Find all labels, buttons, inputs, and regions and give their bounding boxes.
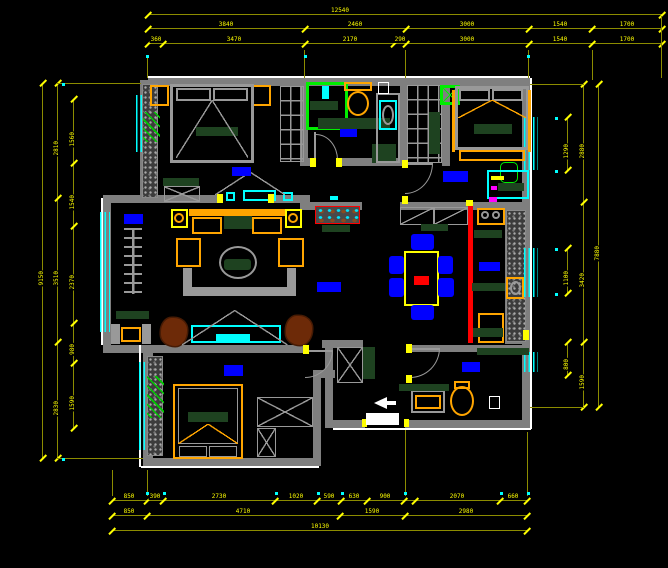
witness-dot-13: [555, 248, 558, 251]
jamb-bed1-right: [268, 194, 274, 203]
decor-cabinet: [315, 206, 360, 224]
top-major-text-3: 1540: [552, 22, 568, 28]
label-bath2: [462, 362, 480, 372]
top-detail-text-1: 3470: [226, 37, 242, 43]
top-detail-text-6: 1700: [619, 37, 635, 43]
extension-line-5: [661, 16, 662, 78]
left-major-text-2: 2830: [54, 400, 60, 416]
hatch-kitchen: [506, 210, 526, 342]
stove-burner-left: [481, 211, 489, 219]
bottom-detail-text-3: 1020: [288, 494, 304, 500]
chair-dining-left-1: [389, 256, 404, 274]
bottom-detail-text-1: 390: [149, 494, 162, 500]
tiny-fixture-magenta: [489, 197, 497, 202]
bed3-drape: [178, 424, 238, 444]
balcony-shelf: [116, 311, 149, 319]
living-feature-lines: [182, 310, 288, 345]
wardrobe-bed1: [280, 86, 304, 162]
wardrobe-bed3-a: [257, 397, 313, 427]
shoe-cabinet-side: [363, 347, 375, 379]
door-bath1-leaf: [314, 132, 316, 160]
right-major-text-2: 1590: [580, 374, 586, 390]
dining-table-center: [414, 276, 429, 285]
toilet2-bowl: [450, 386, 474, 416]
bottom-overall-text-0: 10130: [310, 524, 330, 530]
vanity-bath2-inner: [415, 395, 441, 409]
toilet1-tank: [344, 82, 372, 91]
left-detail-line-0: [73, 99, 74, 428]
window-right-mid: [524, 248, 538, 297]
entry-arrow-tail: [387, 401, 396, 405]
wardrobe-bed3-b: [257, 428, 276, 457]
extension-line-13: [527, 432, 528, 496]
fixture-bath1: [378, 82, 389, 94]
jamb-bath2-top: [406, 344, 412, 353]
bed3-pillow-left: [179, 446, 207, 457]
bottom-major-text-0: 850: [123, 509, 136, 515]
left-major-text-1: 3510: [54, 270, 60, 286]
bottom-detail-text-8: 660: [507, 494, 520, 500]
extension-line-9: [530, 407, 584, 408]
right-detail-text-1: 1100: [564, 270, 570, 286]
kitchen-slider-red: [468, 205, 473, 343]
jamb-hall-bottom: [402, 196, 408, 204]
witness-dot-6: [317, 492, 320, 495]
right-detail-text-0: 1290: [564, 143, 570, 159]
label-kitchen: [479, 262, 500, 271]
witness-dot-5: [275, 492, 278, 495]
nightstand-right: [252, 85, 271, 106]
label-bed3: [224, 365, 243, 376]
outline-bottom-left: [141, 466, 319, 468]
washbasin-bowl: [382, 105, 394, 125]
decor-cabinet-base: [322, 225, 350, 232]
top-detail-text-4: 3000: [459, 37, 475, 43]
shower-head: [322, 86, 329, 99]
sofa-seat-left: [192, 217, 222, 234]
jamb-bed2: [303, 345, 309, 354]
right-detail-text-2: 800: [564, 358, 570, 371]
window-bed2-left: [139, 362, 147, 450]
jamb-kitchen-window: [523, 330, 529, 340]
sofa-gray-bottom: [183, 287, 296, 296]
witness-dot-15: [62, 83, 65, 86]
witness-dot-1: [304, 55, 307, 58]
bottom-detail-text-4: 590: [323, 494, 336, 500]
top-detail-text-3: 290: [394, 37, 407, 43]
bottom-major-text-1: 4710: [235, 509, 251, 515]
bath2-counter-top: [477, 348, 529, 355]
jamb-bath2-bottom: [406, 375, 412, 383]
bed3-blanket: [188, 412, 228, 422]
sofa-cushion: [224, 216, 252, 229]
witness-dot-3: [146, 492, 149, 495]
toilet1-bowl: [347, 91, 369, 116]
label-bath1: [340, 129, 357, 137]
extension-line-0: [147, 55, 148, 78]
witness-dot-0: [146, 55, 149, 58]
top-overall-text-0: 12540: [330, 8, 350, 14]
left-detail-text-3: 980: [70, 343, 76, 356]
door-entry-arc: [410, 348, 440, 378]
witness-dot-12: [555, 170, 558, 173]
witness-dot-10: [527, 492, 530, 495]
side-lamp-right: [288, 213, 298, 223]
balcony-stool-left: [111, 324, 120, 344]
sofa-seat-right: [252, 217, 282, 234]
top-major-text-0: 3840: [218, 22, 234, 28]
toilet2-tank: [454, 381, 470, 389]
bedTR-drape: [458, 100, 526, 118]
left-detail-text-0: 1560: [70, 131, 76, 147]
door-hall-arc: [405, 163, 433, 194]
chair-dining-top: [411, 234, 434, 250]
label-bed1: [232, 167, 251, 176]
chair-dining-right-1: [438, 256, 453, 274]
desk-item-pen: [491, 176, 504, 180]
left-detail-text-1: 1540: [70, 194, 76, 210]
right-major-text-1: 3420: [580, 272, 586, 288]
bottom-detail-text-0: 850: [123, 494, 136, 500]
outline-top: [148, 76, 530, 78]
bottom-major-line-0: [112, 515, 527, 516]
bed1-drape: [176, 100, 248, 158]
top-major-text-1: 2460: [347, 22, 363, 28]
bedTR-blanket: [474, 124, 512, 134]
kitchen-counter-b: [434, 207, 468, 225]
top-overall-line-0: [148, 14, 662, 15]
bottom-detail-text-6: 900: [379, 494, 392, 500]
top-detail-text-2: 2170: [342, 37, 358, 43]
sofa-back: [189, 209, 285, 216]
window-living-left: [100, 212, 110, 332]
witness-dot-14: [555, 293, 558, 296]
left-overall-text-0: 9150: [39, 270, 45, 286]
label-balcony: [124, 214, 143, 224]
coffee-plant: [224, 259, 251, 270]
kitchen-counter-1: [474, 230, 502, 238]
extension-line-12: [405, 430, 406, 496]
sink-bowl: [510, 281, 521, 295]
top-major-text-4: 1700: [619, 22, 635, 28]
chair-dining-left-2: [389, 278, 404, 297]
balcony-stool-right: [142, 324, 151, 344]
kitchen-counter-3: [473, 328, 503, 337]
flower-rack: [124, 228, 142, 294]
balcony-table: [121, 327, 141, 342]
extension-line-10: [112, 470, 113, 496]
door-bath1-arc: [316, 134, 338, 160]
witness-dot-16: [62, 458, 65, 461]
extension-line-6: [57, 83, 141, 84]
door-entry-leaf: [410, 348, 440, 350]
entry-arrow: [374, 397, 396, 409]
jamb-entrance-right: [404, 419, 409, 427]
bedTR-trim-right: [528, 90, 531, 152]
witness-dot-2: [527, 55, 530, 58]
extension-line-7: [57, 458, 143, 459]
extension-line-2: [405, 50, 406, 78]
left-detail-text-4: 1590: [70, 395, 76, 411]
floor-drain: [489, 396, 500, 409]
bottom-detail-line-0: [112, 500, 527, 501]
bottom-major-text-2: 1590: [364, 509, 380, 515]
top-detail-text-0: 360: [150, 37, 163, 43]
wall-bottom: [143, 458, 319, 466]
wall-entry-bottom-b: [405, 420, 530, 428]
dresser-bedTR: [459, 150, 525, 161]
window-left-upper: [136, 95, 142, 152]
outline-bottom-entry: [333, 428, 531, 430]
witness-dot-8: [404, 492, 407, 495]
desk-item-book: [498, 183, 524, 191]
dresser-bed1: [164, 186, 200, 202]
right-major-text-0: 2880: [580, 143, 586, 159]
entry-plate: [366, 413, 399, 425]
shower-bench: [310, 101, 338, 110]
bottom-detail-text-7: 2070: [449, 494, 465, 500]
window-right-low: [524, 352, 538, 372]
extension-line-4: [592, 50, 593, 80]
right-major-line-0: [583, 84, 584, 407]
bottom-detail-text-2: 2730: [211, 494, 227, 500]
label-living: [317, 282, 341, 292]
kitchen-shelf-top: [421, 224, 448, 231]
entry-arrow-head: [374, 397, 387, 409]
top-detail-text-5: 1540: [552, 37, 568, 43]
shoe-cabinet: [337, 347, 363, 383]
top-major-text-2: 3000: [459, 22, 475, 28]
left-detail-text-2: 2370: [70, 274, 76, 290]
door-bed2-leaf: [305, 350, 333, 352]
jamb-bath1-left: [310, 158, 316, 167]
kitchen-counter-a: [400, 207, 434, 225]
dresser-bed1-top: [163, 178, 199, 186]
bottom-major-text-3: 2980: [458, 509, 474, 515]
kitchen-counter-2: [472, 283, 505, 291]
armchair-right: [278, 238, 304, 267]
chair-dining-right-2: [438, 278, 454, 297]
extension-line-8: [530, 84, 584, 85]
closet-clothes: [429, 112, 440, 154]
door-hall-leaf: [405, 163, 433, 165]
witness-dot-7: [341, 492, 344, 495]
wall-living-bottom: [103, 345, 307, 353]
side-lamp-left: [174, 213, 184, 223]
bedTR-trim-left: [452, 90, 455, 152]
wall-entry-bottom-a: [333, 420, 365, 428]
bath2-counter-left: [399, 384, 449, 391]
jamb-hall-top: [402, 160, 408, 168]
witness-dot-11: [555, 117, 558, 120]
desk-item-mouse: [491, 186, 497, 190]
plant-bed3: [147, 376, 164, 418]
stove-burner-right: [492, 211, 500, 219]
chair-dining-bottom: [411, 305, 434, 320]
label-hall: [443, 171, 468, 182]
witness-dot-9: [500, 492, 503, 495]
right-overall-text-0: 7880: [595, 245, 601, 261]
plant-living-right: [286, 316, 312, 345]
bed3-pillow-right: [209, 446, 237, 457]
plant-top-left: [143, 112, 160, 142]
left-major-text-0: 2810: [54, 140, 60, 156]
wall-bed2-right: [313, 378, 321, 466]
tiny-fixture-cyan: [330, 196, 338, 200]
nightstand-left: [150, 85, 169, 106]
jamb-bath1-right: [336, 158, 342, 167]
armchair-left: [176, 238, 201, 267]
jamb-kitchen-top: [466, 200, 473, 206]
drawing-canvas[interactable]: 1254038402460300015401700360347021702903…: [0, 0, 668, 568]
bottom-overall-line-0: [112, 530, 527, 531]
bottom-detail-text-5: 630: [348, 494, 361, 500]
witness-dot-4: [163, 492, 166, 495]
jamb-bed1-left: [217, 194, 223, 203]
